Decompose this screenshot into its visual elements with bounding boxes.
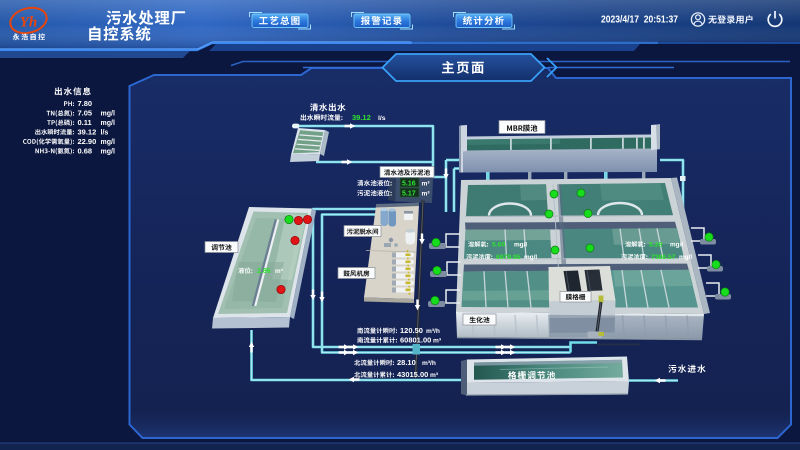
svg-text:m³: m³: [275, 268, 283, 275]
svg-text:39.12: 39.12: [78, 127, 97, 136]
svg-text:m³: m³: [422, 191, 431, 198]
svg-text:Yh: Yh: [20, 15, 38, 31]
svg-text:7.80: 7.80: [78, 99, 93, 108]
svg-text:6979.95: 6979.95: [496, 254, 521, 261]
svg-text:mg/l: mg/l: [101, 139, 115, 146]
svg-text:5.17: 5.17: [402, 191, 416, 198]
svg-text:l/s: l/s: [378, 115, 386, 122]
svg-text:mg/l: mg/l: [101, 110, 115, 117]
svg-text:m³: m³: [422, 181, 431, 188]
svg-text:5.16: 5.16: [402, 181, 416, 188]
svg-text:7386.57: 7386.57: [651, 254, 676, 261]
svg-text:m³/h: m³/h: [426, 328, 440, 335]
svg-text:mg/l: mg/l: [524, 254, 537, 261]
svg-text:mg/l: mg/l: [101, 148, 115, 155]
svg-text:mg/l: mg/l: [101, 120, 115, 127]
svg-text:0.11: 0.11: [78, 118, 92, 127]
svg-text:2.86: 2.86: [257, 268, 271, 275]
svg-text:120.50: 120.50: [400, 326, 423, 335]
svg-text:7.05: 7.05: [78, 108, 93, 117]
svg-text:22.90: 22.90: [78, 137, 97, 146]
svg-text:5.28: 5.28: [649, 242, 662, 249]
svg-text:0.68: 0.68: [78, 146, 93, 155]
svg-text:43015.00: 43015.00: [397, 370, 428, 379]
svg-text:39.12: 39.12: [352, 113, 371, 122]
svg-text:5.60: 5.60: [492, 242, 505, 249]
svg-text:2023/4/17 20:51:37: 2023/4/17 20:51:37: [601, 14, 678, 26]
svg-text:mg/l: mg/l: [514, 242, 527, 249]
svg-text:mg/l: mg/l: [679, 254, 692, 261]
svg-text:60801.00: 60801.00: [400, 336, 431, 345]
svg-text:mg/l: mg/l: [670, 242, 683, 249]
svg-text:28.10: 28.10: [397, 358, 416, 367]
svg-text:m³/h: m³/h: [422, 360, 436, 367]
svg-text:l/s: l/s: [101, 129, 109, 136]
svg-text:m³: m³: [433, 338, 442, 345]
svg-text:m³: m³: [430, 372, 439, 379]
